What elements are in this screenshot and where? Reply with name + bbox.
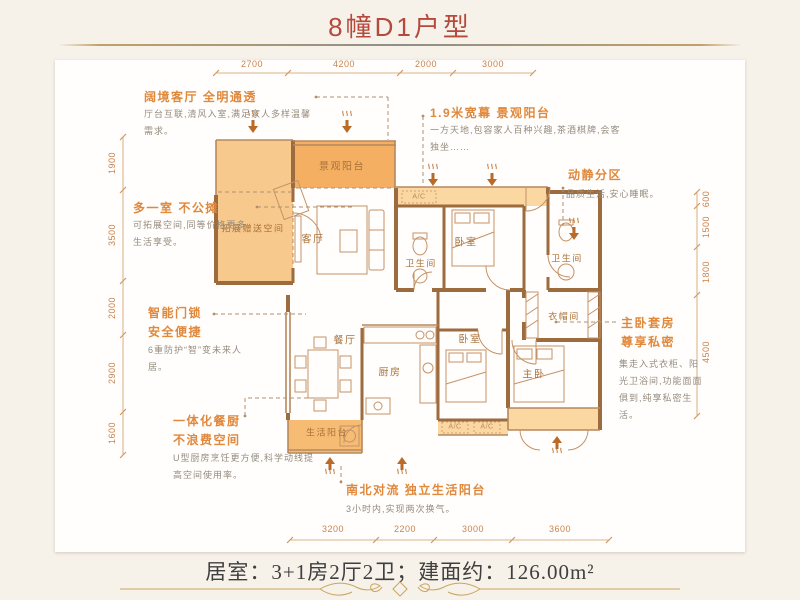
floorplan-page: 8幢D1户型 [0,0,800,600]
annotation-smart-lock-body: 6重防护“智”变未来人居。 [148,342,252,376]
dim-right-3: 1800 [701,261,711,283]
dim-left-2: 3500 [107,224,117,246]
annotation-kitchen-heading: 一体化餐厨 不浪费空间 [173,412,241,449]
annotation-ventilation-body: 3小时内,实现两次换气。 [346,501,456,518]
annotation-zoning-body: 品质生活,安心睡眠。 [566,186,660,203]
ac-label-3: A/C [480,424,493,431]
dim-bottom-1: 3200 [322,524,344,534]
annotation-view-balcony-body: 一方天地,包容家人百种兴趣,茶酒棋牌,会客独坐…… [430,122,624,156]
ac-label-1: A/C [412,194,425,201]
dim-left-5: 1600 [107,422,117,444]
annotation-living-body: 厅台互联,清风入室,满足家人多样温馨需求。 [144,106,320,140]
annotation-ventilation-heading: 南北对流 独立生活阳台 [346,481,486,500]
dim-bottom-3: 3000 [462,524,484,534]
annotation-view-balcony-heading: 1.9米宽幕 景观阳台 [430,104,551,123]
annotation-smart-lock-heading: 智能门锁 安全便捷 [148,304,202,341]
room-label-view-balcony: 景观阳台 [319,158,365,173]
room-label-living: 客厅 [302,231,325,246]
room-label-dining: 餐厅 [334,332,357,347]
dim-top-1: 2700 [241,59,263,69]
annotation-master-body: 集走入式衣柜、阳光卫浴间,功能面面俱到,纯享私密生活。 [619,356,703,424]
dim-top-4: 3000 [482,59,504,69]
room-label-cloakroom: 衣帽间 [548,310,580,323]
room-label-bed-2: 卧室 [459,331,482,346]
dim-top-2: 4200 [333,59,355,69]
dim-left-3: 2000 [107,297,117,319]
annotation-zoning-heading: 动静分区 [568,166,622,185]
gold-divider [58,44,742,46]
dim-bottom-4: 3600 [549,524,571,534]
annotation-living-heading: 阔境客厅 全明通透 [144,88,257,107]
dim-top-3: 2000 [415,59,437,69]
annotation-bonus-heading: 多一室 不公摊 [133,199,219,218]
room-label-bath-1: 卫生间 [405,257,437,270]
dim-left-1: 1900 [107,152,117,174]
room-label-kitchen: 厨房 [379,364,402,379]
room-label-bath-2: 卫生间 [551,252,583,265]
annotation-kitchen-body: U型厨房烹饪更方便,科学动线提高空间使用率。 [173,450,323,484]
dim-left-4: 2900 [107,362,117,384]
annotation-master-heading: 主卧套房 尊享私密 [621,314,675,351]
room-label-bed-1: 卧室 [455,234,478,249]
annotation-bonus-body: 可拓展空间,同等价格更多生活享受。 [133,217,247,251]
dim-bottom-2: 2200 [394,524,416,534]
dim-right-1: 600 [701,191,711,208]
page-title: 8幢D1户型 [0,7,800,44]
room-label-life-balcony: 生活阳台 [306,426,348,439]
ac-boxes [402,191,500,433]
gold-flourish [120,580,680,598]
ac-label-2: A/C [448,424,461,431]
room-label-master: 主卧 [523,366,546,381]
dim-right-2: 1500 [701,216,711,238]
